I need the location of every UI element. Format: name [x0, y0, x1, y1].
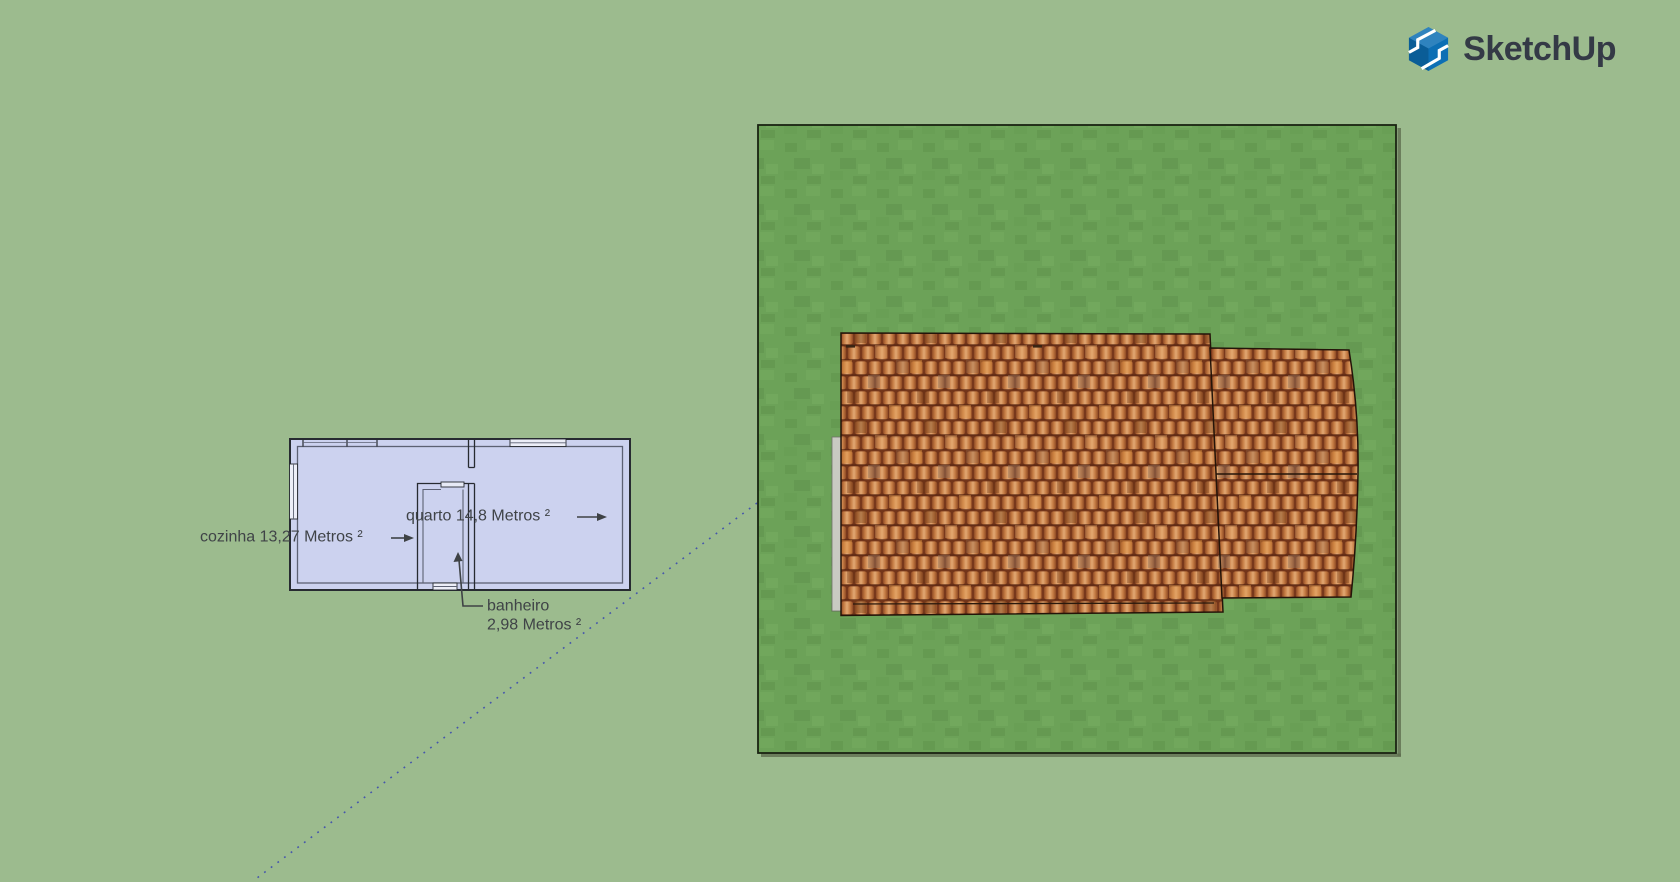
sketchup-watermark: SketchUp [1405, 26, 1616, 73]
sketchup-logo-icon [1405, 26, 1452, 73]
banheiro-label-name[interactable]: banheiro [487, 597, 549, 615]
extension-roof-texture-overlay [1210, 348, 1358, 598]
main-roof-tick-right [1033, 345, 1042, 348]
banheiro-label-area[interactable]: 2,98 Metros ² [487, 616, 581, 634]
quarto-label[interactable]: quarto 14,8 Metros ² [406, 507, 550, 525]
sketchup-viewport[interactable]: cozinha 13,27 Metros ² quarto 14,8 Metro… [0, 0, 1680, 882]
banheiro-door[interactable] [441, 482, 464, 487]
lawn-shadow-right [1398, 128, 1402, 756]
sketchup-logo-text: SketchUp [1463, 30, 1616, 69]
model-space [0, 0, 1680, 882]
cozinha-label[interactable]: cozinha 13,27 Metros ² [200, 528, 363, 546]
main-roof-tick-left [846, 345, 855, 348]
lawn-shadow-bottom [761, 754, 1401, 758]
main-roof-texture-overlay [841, 333, 1223, 616]
house-top-view-group[interactable] [758, 125, 1401, 757]
